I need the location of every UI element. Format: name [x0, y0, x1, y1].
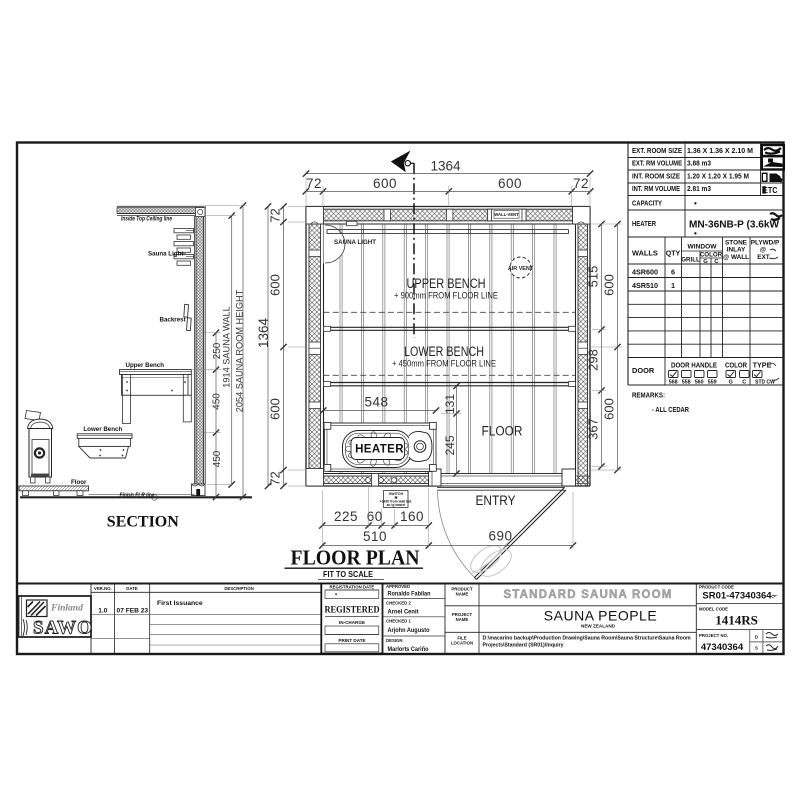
- svg-text:TYPE: TYPE: [753, 361, 772, 370]
- svg-text:Sauna Light: Sauna Light: [148, 251, 183, 258]
- svg-text:EXT.: EXT.: [757, 254, 771, 261]
- svg-text:600: 600: [268, 398, 283, 420]
- svg-text:REGISTRATION DATE: REGISTRATION DATE: [330, 584, 375, 589]
- svg-text:CHECKED 2: CHECKED 2: [386, 601, 411, 606]
- svg-text:INT. ROOM SIZE: INT. ROOM SIZE: [632, 172, 680, 181]
- svg-text:REGISTERED: REGISTERED: [325, 605, 380, 616]
- svg-text:1364: 1364: [256, 317, 271, 348]
- svg-text:4SR600: 4SR600: [632, 268, 658, 277]
- svg-text:160: 160: [400, 509, 424, 524]
- svg-text:STANDARD SAUNA ROOM: STANDARD SAUNA ROOM: [503, 589, 672, 601]
- svg-text:72: 72: [306, 176, 322, 191]
- svg-text:First Issuance: First Issuance: [157, 600, 203, 607]
- svg-text:G: G: [703, 259, 708, 265]
- svg-text:CHECKED 1: CHECKED 1: [386, 619, 411, 624]
- svg-text:72: 72: [268, 471, 283, 485]
- svg-text:1414RS: 1414RS: [715, 613, 758, 628]
- svg-text:Finland: Finland: [50, 604, 83, 614]
- svg-text:REMARKS:: REMARKS:: [632, 391, 665, 400]
- svg-text:600: 600: [602, 274, 617, 296]
- svg-text:APPROVED: APPROVED: [386, 584, 410, 589]
- svg-text:Floor: Floor: [71, 479, 87, 486]
- svg-text:Inside Top Ceiling line: Inside Top Ceiling line: [121, 217, 173, 223]
- svg-text:•: •: [694, 229, 697, 238]
- svg-text:SAUNA PEOPLE: SAUNA PEOPLE: [544, 608, 657, 624]
- svg-text:FIT TO SCALE: FIT TO SCALE: [323, 570, 373, 579]
- svg-text:600: 600: [602, 398, 617, 420]
- svg-text:600: 600: [268, 274, 283, 296]
- svg-text:NEW ZEALAND: NEW ZEALAND: [581, 624, 616, 629]
- svg-text:DATE: DATE: [126, 586, 138, 591]
- svg-text:UPPER BENCH: UPPER BENCH: [407, 276, 486, 291]
- svg-text:EXT. RM VOLUME: EXT. RM VOLUME: [632, 159, 682, 168]
- svg-text:Arnel Cenit: Arnel Cenit: [388, 609, 420, 616]
- svg-text:+ 900mm FROM FLOOR LINE: + 900mm FROM FLOOR LINE: [394, 291, 498, 301]
- svg-text:D:\macarino backup\Production: D:\macarino backup\Production Drawing\Sa…: [483, 636, 691, 642]
- svg-text:DOOR: DOOR: [632, 366, 655, 375]
- svg-text:WINDOW: WINDOW: [688, 244, 718, 251]
- svg-text:- ALL CEDAR: - ALL CEDAR: [652, 405, 690, 414]
- svg-text:COLOR: COLOR: [725, 361, 748, 370]
- svg-text:367: 367: [586, 418, 601, 440]
- svg-text:245: 245: [443, 435, 457, 455]
- svg-text:NAME: NAME: [456, 617, 469, 622]
- svg-text:IN-CHARGE: IN-CHARGE: [339, 620, 365, 625]
- svg-text:Lower Bench: Lower Bench: [83, 426, 122, 433]
- svg-text:1914 SAUNA WALL: 1914 SAUNA WALL: [222, 306, 232, 387]
- svg-text:515: 515: [586, 266, 601, 288]
- svg-text:INT. RM VOLUME: INT. RM VOLUME: [632, 184, 680, 193]
- svg-text:LOCATION: LOCATION: [451, 641, 473, 646]
- svg-text:Ronaldo Fabilan: Ronaldo Fabilan: [388, 591, 431, 598]
- svg-text:MN-36NB-P (3.6kW: MN-36NB-P (3.6kW: [689, 219, 779, 231]
- svg-text:@: @: [760, 247, 766, 254]
- svg-text:+ 450mm FROM FLOOR LINE: + 450mm FROM FLOOR LINE: [392, 359, 496, 369]
- svg-text:450: 450: [212, 450, 223, 467]
- svg-text:4SR510: 4SR510: [632, 281, 658, 290]
- svg-text:Arjohn Augusto: Arjohn Augusto: [388, 627, 430, 634]
- svg-text:47340364: 47340364: [701, 642, 744, 653]
- svg-text:SECTION: SECTION: [107, 514, 179, 531]
- svg-text:558: 558: [682, 380, 691, 386]
- svg-text:6: 6: [671, 268, 675, 277]
- svg-text:600: 600: [373, 176, 397, 191]
- svg-text:600: 600: [498, 176, 522, 191]
- svg-text:3.88 m3: 3.88 m3: [687, 159, 711, 168]
- svg-text:NAME: NAME: [456, 592, 469, 597]
- svg-text:559: 559: [708, 380, 717, 386]
- svg-text:568: 568: [669, 380, 678, 386]
- svg-text:PRINT DATE: PRINT DATE: [338, 638, 365, 643]
- svg-text:FLOOR: FLOOR: [482, 424, 523, 439]
- svg-text:ac ig towrel: ac ig towrel: [387, 503, 406, 507]
- svg-text:WALLS: WALLS: [632, 249, 658, 258]
- svg-text:Projects\Standard (SR01)\Inqui: Projects\Standard (SR01)\Inquiry: [483, 643, 564, 649]
- svg-text:690: 690: [488, 529, 512, 544]
- svg-text:PROJECT NO.: PROJECT NO.: [699, 633, 728, 638]
- svg-text:1.36 X 1.36 X 2.10 M: 1.36 X 1.36 X 2.10 M: [687, 146, 753, 155]
- svg-text:1364: 1364: [430, 159, 461, 174]
- svg-text:HEATER: HEATER: [355, 444, 404, 456]
- svg-text:LOWER BENCH: LOWER BENCH: [404, 344, 484, 359]
- svg-text:SAWO: SAWO: [33, 618, 93, 639]
- svg-text:COLOR: COLOR: [700, 252, 723, 259]
- svg-text:G: G: [729, 380, 733, 386]
- svg-text:450: 450: [212, 393, 223, 410]
- svg-text:AIR VENT: AIR VENT: [508, 266, 534, 272]
- svg-text:2.81 m3: 2.81 m3: [687, 184, 711, 193]
- svg-text:72: 72: [573, 176, 589, 191]
- svg-text:1.20 X 1.20 X 1.95 M: 1.20 X 1.20 X 1.95 M: [687, 172, 749, 181]
- svg-text:2054 SAUNA ROOM HEIGHT: 2054 SAUNA ROOM HEIGHT: [235, 289, 245, 412]
- svg-text:GRILL: GRILL: [681, 257, 700, 264]
- svg-text:MODEL CODE: MODEL CODE: [699, 606, 728, 611]
- svg-text:STONE: STONE: [725, 240, 748, 247]
- svg-text:1.0: 1.0: [98, 608, 107, 615]
- svg-text:225: 225: [334, 509, 358, 524]
- svg-text:ENTRY: ENTRY: [476, 493, 516, 508]
- svg-text:1: 1: [671, 281, 675, 290]
- svg-text:PRODUCT CODE: PRODUCT CODE: [699, 584, 734, 589]
- svg-text:510: 510: [363, 529, 387, 544]
- svg-text:Marlorts Cariño: Marlorts Cariño: [388, 646, 429, 653]
- svg-text:Upper Bench: Upper Bench: [126, 362, 165, 369]
- svg-text:DESIGN: DESIGN: [386, 638, 402, 643]
- svg-text:QTY: QTY: [666, 251, 681, 258]
- svg-text:07 FEB 23: 07 FEB 23: [117, 608, 149, 615]
- svg-text:INLAY: INLAY: [727, 247, 746, 254]
- svg-text:560: 560: [695, 380, 704, 386]
- svg-text:DOOR HANDLE: DOOR HANDLE: [671, 361, 717, 370]
- svg-text:SR01-47340364: SR01-47340364: [702, 591, 772, 602]
- svg-text:S: S: [755, 646, 758, 651]
- svg-text:HEATER: HEATER: [632, 219, 657, 228]
- svg-text:C: C: [742, 380, 746, 386]
- svg-text:298: 298: [586, 349, 601, 371]
- svg-text:VER.NO.: VER.NO.: [94, 586, 112, 591]
- svg-text:WALL-VENT: WALL-VENT: [494, 212, 519, 217]
- svg-text:•: •: [335, 593, 337, 599]
- svg-text:PLYWD/P: PLYWD/P: [751, 240, 780, 247]
- svg-text:CAPACITY: CAPACITY: [632, 199, 662, 208]
- svg-text:548: 548: [364, 395, 388, 410]
- svg-text:131: 131: [443, 394, 457, 414]
- svg-text:Backrest: Backrest: [160, 317, 186, 324]
- svg-text:FLOOR PLAN: FLOOR PLAN: [291, 546, 420, 570]
- svg-text:@ WALL: @ WALL: [723, 254, 749, 261]
- svg-text:EXT. ROOM SIZE: EXT. ROOM SIZE: [632, 146, 682, 155]
- svg-text:72: 72: [268, 208, 283, 222]
- svg-text:SAUNA LIGHT: SAUNA LIGHT: [334, 239, 376, 246]
- svg-text:•: •: [694, 199, 697, 208]
- svg-text:60: 60: [367, 509, 383, 524]
- svg-text:DESCRIPTION: DESCRIPTION: [224, 586, 253, 591]
